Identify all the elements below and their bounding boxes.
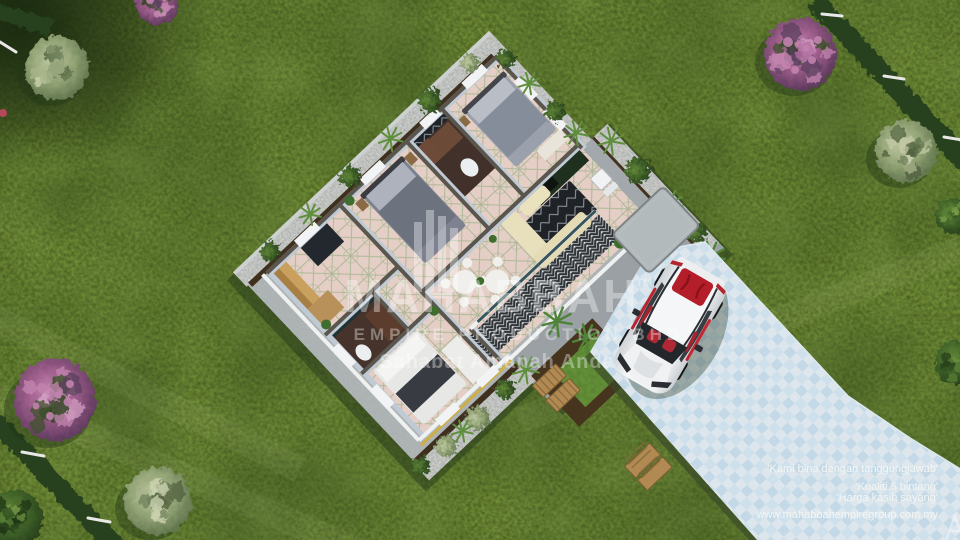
svg-text:'Harga kasih sayang': 'Harga kasih sayang'	[837, 492, 938, 504]
svg-text:Sahabat Amanah Anda: Sahabat Amanah Anda	[379, 351, 614, 373]
svg-text:MAHABBAH: MAHABBAH	[345, 270, 640, 322]
svg-text:'Kami bina dengan tanggungjawa: 'Kami bina dengan tanggungjawab'	[767, 463, 938, 475]
svg-text:www.mahabbahempiregroup.com.my: www.mahabbahempiregroup.com.my	[755, 509, 938, 521]
svg-text:EMPIRE PRODUCTION BHD: EMPIRE PRODUCTION BHD	[354, 325, 685, 344]
svg-text:TM: TM	[636, 277, 652, 289]
